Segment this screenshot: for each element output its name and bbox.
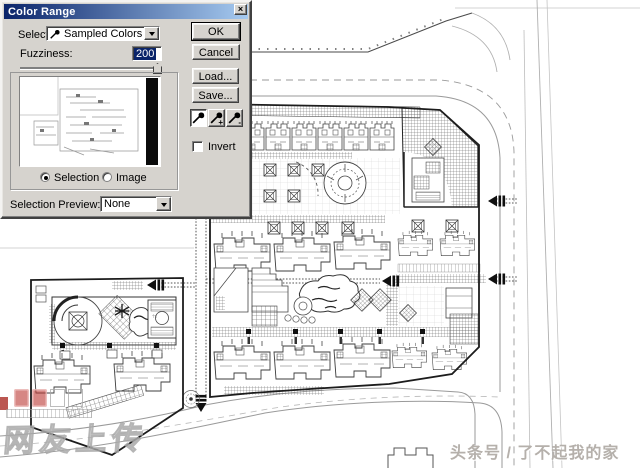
selection-preview-thumbnail[interactable] [19,76,161,167]
image-radio[interactable] [102,172,112,182]
plus-glyph: + [218,118,223,127]
eyedropper-icon [49,28,61,40]
cancel-button[interactable]: Cancel [192,44,240,60]
selection-preview-arrow[interactable] [156,197,171,211]
fuzziness-input[interactable]: 200 [132,46,162,61]
fuzziness-slider-track[interactable] [20,67,162,70]
eyedropper-icon [191,110,206,125]
red-watermark-glyph [14,389,29,407]
outline-watermark-glyph [50,389,65,407]
dialog-title: Color Range [4,6,76,18]
select-dropdown-arrow[interactable] [144,27,159,40]
close-button[interactable]: × [234,4,247,15]
photoshop-workspace: 网友上传 头条号 / 了不起我的家 Color Range × Select: … [0,0,640,468]
selection-radio-label[interactable]: Selection [54,172,99,184]
selection-preview-value: None [101,198,156,210]
load-button[interactable]: Load... [192,68,239,84]
uploader-watermark: 网友上传 [2,413,150,461]
selection-radio[interactable] [40,172,50,182]
minus-glyph: - [238,118,241,127]
credit-watermark: 头条号 / 了不起我的家 [450,439,619,463]
eyedropper-button[interactable] [190,109,207,127]
radio-dot [44,176,48,180]
invert-checkbox[interactable] [192,141,203,152]
outline-watermark-glyph [68,389,83,407]
selection-preview-label: Selection Preview: [10,199,101,211]
partial-building-south [388,448,433,468]
selection-preview-dropdown[interactable]: None [100,196,172,212]
subtract-eyedropper-button[interactable]: - [226,109,243,127]
fuzziness-label: Fuzziness: [20,48,73,60]
main-parcel [210,104,505,397]
dialog-titlebar[interactable]: Color Range [4,4,248,19]
invert-label[interactable]: Invert [208,141,236,153]
save-button[interactable]: Save... [192,87,239,103]
close-icon: × [238,4,243,14]
preview-minimap [20,77,160,166]
color-range-dialog: Color Range × Select: Sampled Colors Fuz… [0,0,252,219]
select-dropdown[interactable]: Sampled Colors [46,26,160,41]
add-eyedropper-button[interactable]: + [208,109,225,127]
red-watermark-logo [14,389,86,407]
chevron-down-icon [161,203,167,210]
ok-button[interactable]: OK [192,23,240,40]
chevron-down-icon [149,32,155,39]
image-radio-label[interactable]: Image [116,172,147,184]
select-value: Sampled Colors [61,28,144,40]
fuzziness-value: 200 [134,48,156,60]
red-watermark-glyph [32,389,47,407]
